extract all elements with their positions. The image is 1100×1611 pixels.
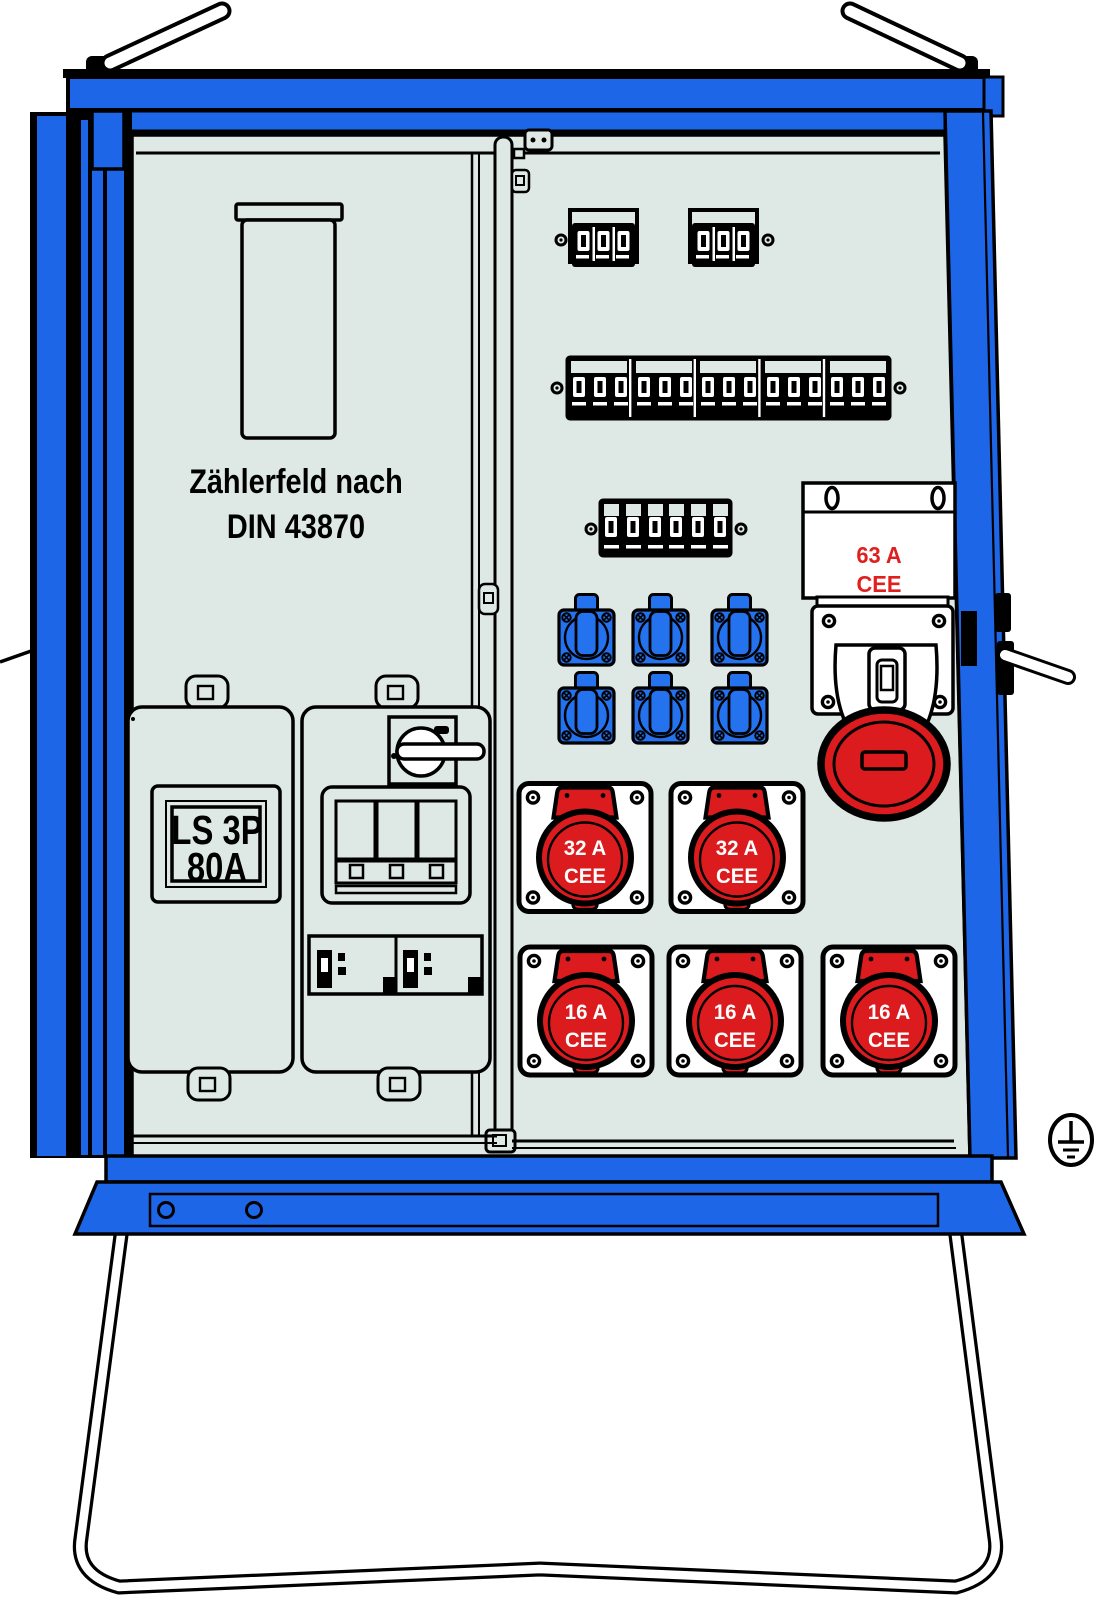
cabinet-line-art — [0, 0, 1100, 1611]
terminal-compartment — [309, 936, 482, 994]
earth-symbol — [1050, 1115, 1092, 1165]
meter-field-label: Zählerfeld nach DIN 43870 — [177, 460, 415, 550]
door-hinge-block — [961, 611, 977, 666]
meter-panel-modules — [128, 676, 490, 1100]
center-divider — [495, 137, 512, 1147]
cee-16a-label-1: 16 A CEE — [534, 998, 639, 1054]
cee-63a-socket — [803, 483, 955, 818]
main-breaker-label: LS 3P 80A — [160, 812, 274, 886]
breaker-row-15 — [552, 357, 905, 419]
stand-frame — [80, 1220, 995, 1587]
breaker-row-6 — [586, 500, 746, 556]
power-distribution-cabinet-drawing: Zählerfeld nach DIN 43870 LS 3P 80A 63 A… — [0, 0, 1100, 1611]
cabinet-roof — [63, 69, 1003, 136]
cee-16a-label-2: 16 A CEE — [683, 998, 788, 1054]
door-handle-lever — [1005, 655, 1068, 677]
left-door-edge — [0, 111, 132, 1158]
meter-window — [236, 204, 342, 438]
meter-field-label-line1: Zählerfeld nach — [177, 460, 415, 505]
top-handle-left — [86, 11, 222, 78]
meter-field-label-line2: DIN 43870 — [177, 505, 415, 550]
main-breaker-label-line2: 80A — [160, 849, 274, 886]
switch-fuse-block — [322, 787, 470, 903]
top-handle-right — [850, 11, 978, 78]
cabinet-base — [75, 1156, 1024, 1234]
cee-32a-label-2: 32 A CEE — [685, 834, 790, 890]
cee-32a-label-1: 32 A CEE — [533, 834, 638, 890]
cee-16a-label-3: 16 A CEE — [837, 998, 942, 1054]
cee-63a-label: 63 A CEE — [807, 541, 951, 599]
